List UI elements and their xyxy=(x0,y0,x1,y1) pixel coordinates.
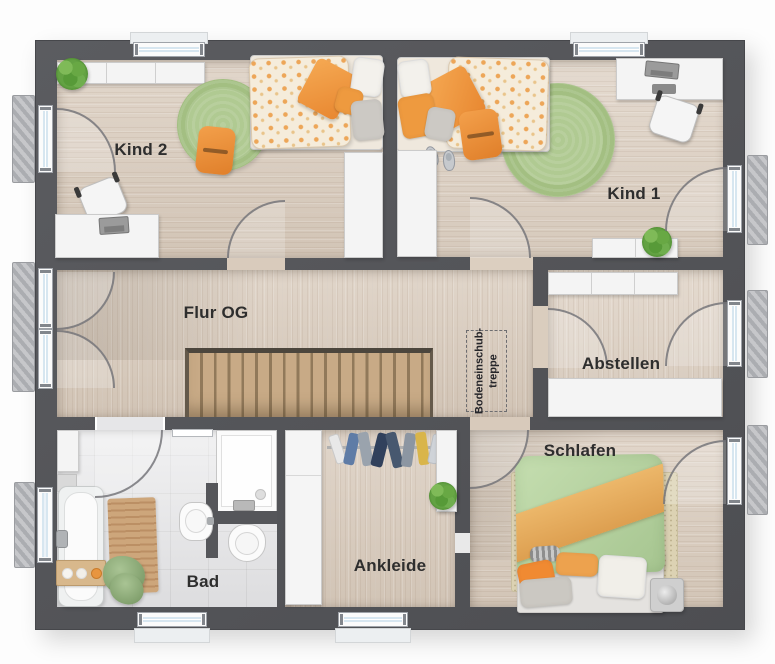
kind2-laptop-icon xyxy=(98,216,129,235)
kind1-wardrobe-icon xyxy=(397,150,437,257)
bad-corner-cabinet-icon xyxy=(57,430,79,472)
bad-tub-faucet-icon xyxy=(56,530,68,548)
window-glass xyxy=(579,47,639,52)
schlafen-pillow-orange-icon xyxy=(555,552,598,577)
window-glass xyxy=(143,617,201,622)
bad-towel-rail-icon xyxy=(172,429,213,437)
ankleide-plant-icon xyxy=(429,482,457,510)
room-label-ankleide: Ankleide xyxy=(354,556,426,576)
attic-hatch-outline: Bodeneinschub- treppe xyxy=(466,330,507,412)
floor-plan: Bodeneinschub- treppe xyxy=(0,0,775,664)
schlafen-balcony-door-window xyxy=(727,437,742,505)
kind1-plant-icon xyxy=(642,227,672,257)
room-label-flur-og: Flur OG xyxy=(184,303,249,323)
bad-shower-fixture-icon xyxy=(233,500,255,511)
kind2-top-window xyxy=(133,42,205,57)
abstellen-wall-cabinet-icon xyxy=(548,272,678,295)
staircase-icon xyxy=(185,348,433,417)
room-label-bad: Bad xyxy=(187,572,220,592)
bad-caddy-icon xyxy=(56,560,106,586)
kind1-laptop-icon xyxy=(644,60,679,79)
schlafen-side-cube-icon xyxy=(650,578,684,612)
bad-left-window xyxy=(37,487,53,563)
window-glass xyxy=(344,617,402,622)
flur-window-top-leaf xyxy=(38,268,53,329)
bad-toilet-icon xyxy=(228,524,266,562)
bad-caddy-soap-icon xyxy=(91,568,102,579)
bad-caddy-roll xyxy=(76,568,87,579)
kind2-plant-icon xyxy=(56,58,88,90)
kind1-balcony-door-window xyxy=(727,165,742,233)
ankleide-window-sill xyxy=(335,628,411,643)
left-shutter-box xyxy=(12,95,35,183)
left-shutter-box xyxy=(14,482,35,568)
bad-sink-faucet-icon xyxy=(207,517,214,525)
right-shutter-box xyxy=(747,155,768,245)
window-glass xyxy=(732,171,737,227)
right-shutter-box xyxy=(747,425,768,515)
abstellen-balcony-door-window xyxy=(727,300,742,367)
window-glass xyxy=(43,274,48,323)
room-label-abstellen: Abstellen xyxy=(582,354,660,374)
doorway-schlafen xyxy=(470,417,530,430)
bad-sink-basin xyxy=(185,509,207,533)
bad-window-sill xyxy=(134,628,210,643)
ankleide-wardrobe-icon xyxy=(285,430,322,605)
kind1-floor-cushion-icon xyxy=(458,108,503,162)
ankleide-bottom-window xyxy=(338,612,408,627)
flur-window-bottom-leaf xyxy=(38,329,53,389)
room-label-kind2: Kind 2 xyxy=(114,140,167,160)
schlafen-pillow-gray-icon xyxy=(519,576,573,608)
bad-toilet-seat xyxy=(235,532,259,555)
bad-shower-drain-icon xyxy=(255,489,266,500)
window-glass xyxy=(43,335,48,383)
kind1-keyboard-icon xyxy=(652,84,676,94)
bad-partition-counter xyxy=(206,511,277,524)
window-glass xyxy=(732,443,737,499)
opening-ankleide-schlafen xyxy=(455,533,470,553)
room-label-schlafen: Schlafen xyxy=(544,441,616,461)
doorway-kind2 xyxy=(227,258,285,270)
window-glass xyxy=(42,493,48,557)
attic-hatch-label-line2: treppe xyxy=(487,328,501,414)
schlafen-pillow-white-icon xyxy=(597,554,648,599)
abstellen-cabinet-icon xyxy=(548,378,722,417)
kind2-balcony-door-window xyxy=(38,105,53,173)
right-shutter-box xyxy=(747,290,768,378)
left-shutter-box xyxy=(12,262,35,392)
kind1-top-window xyxy=(573,42,645,57)
attic-hatch-label: Bodeneinschub- treppe xyxy=(473,328,501,414)
bad-caddy-roll xyxy=(62,568,73,579)
window-glass xyxy=(43,111,48,167)
bad-shower-icon xyxy=(216,430,277,512)
room-label-kind1: Kind 1 xyxy=(607,184,660,204)
bad-bottom-window xyxy=(137,612,207,627)
window-glass xyxy=(139,47,199,52)
kind1-pillow-gray-icon xyxy=(423,106,456,142)
window-glass xyxy=(732,306,737,361)
doorway-bad xyxy=(95,417,165,430)
doorway-abstellen xyxy=(533,306,548,368)
kind2-pillow-gray-icon xyxy=(350,98,385,141)
bad-sink-icon xyxy=(179,502,213,541)
attic-hatch-label-line1: Bodeneinschub- xyxy=(473,328,487,414)
doorway-kind1 xyxy=(470,257,533,270)
kind2-wardrobe-icon xyxy=(344,152,383,258)
kind2-floor-cushion-icon xyxy=(195,125,237,176)
